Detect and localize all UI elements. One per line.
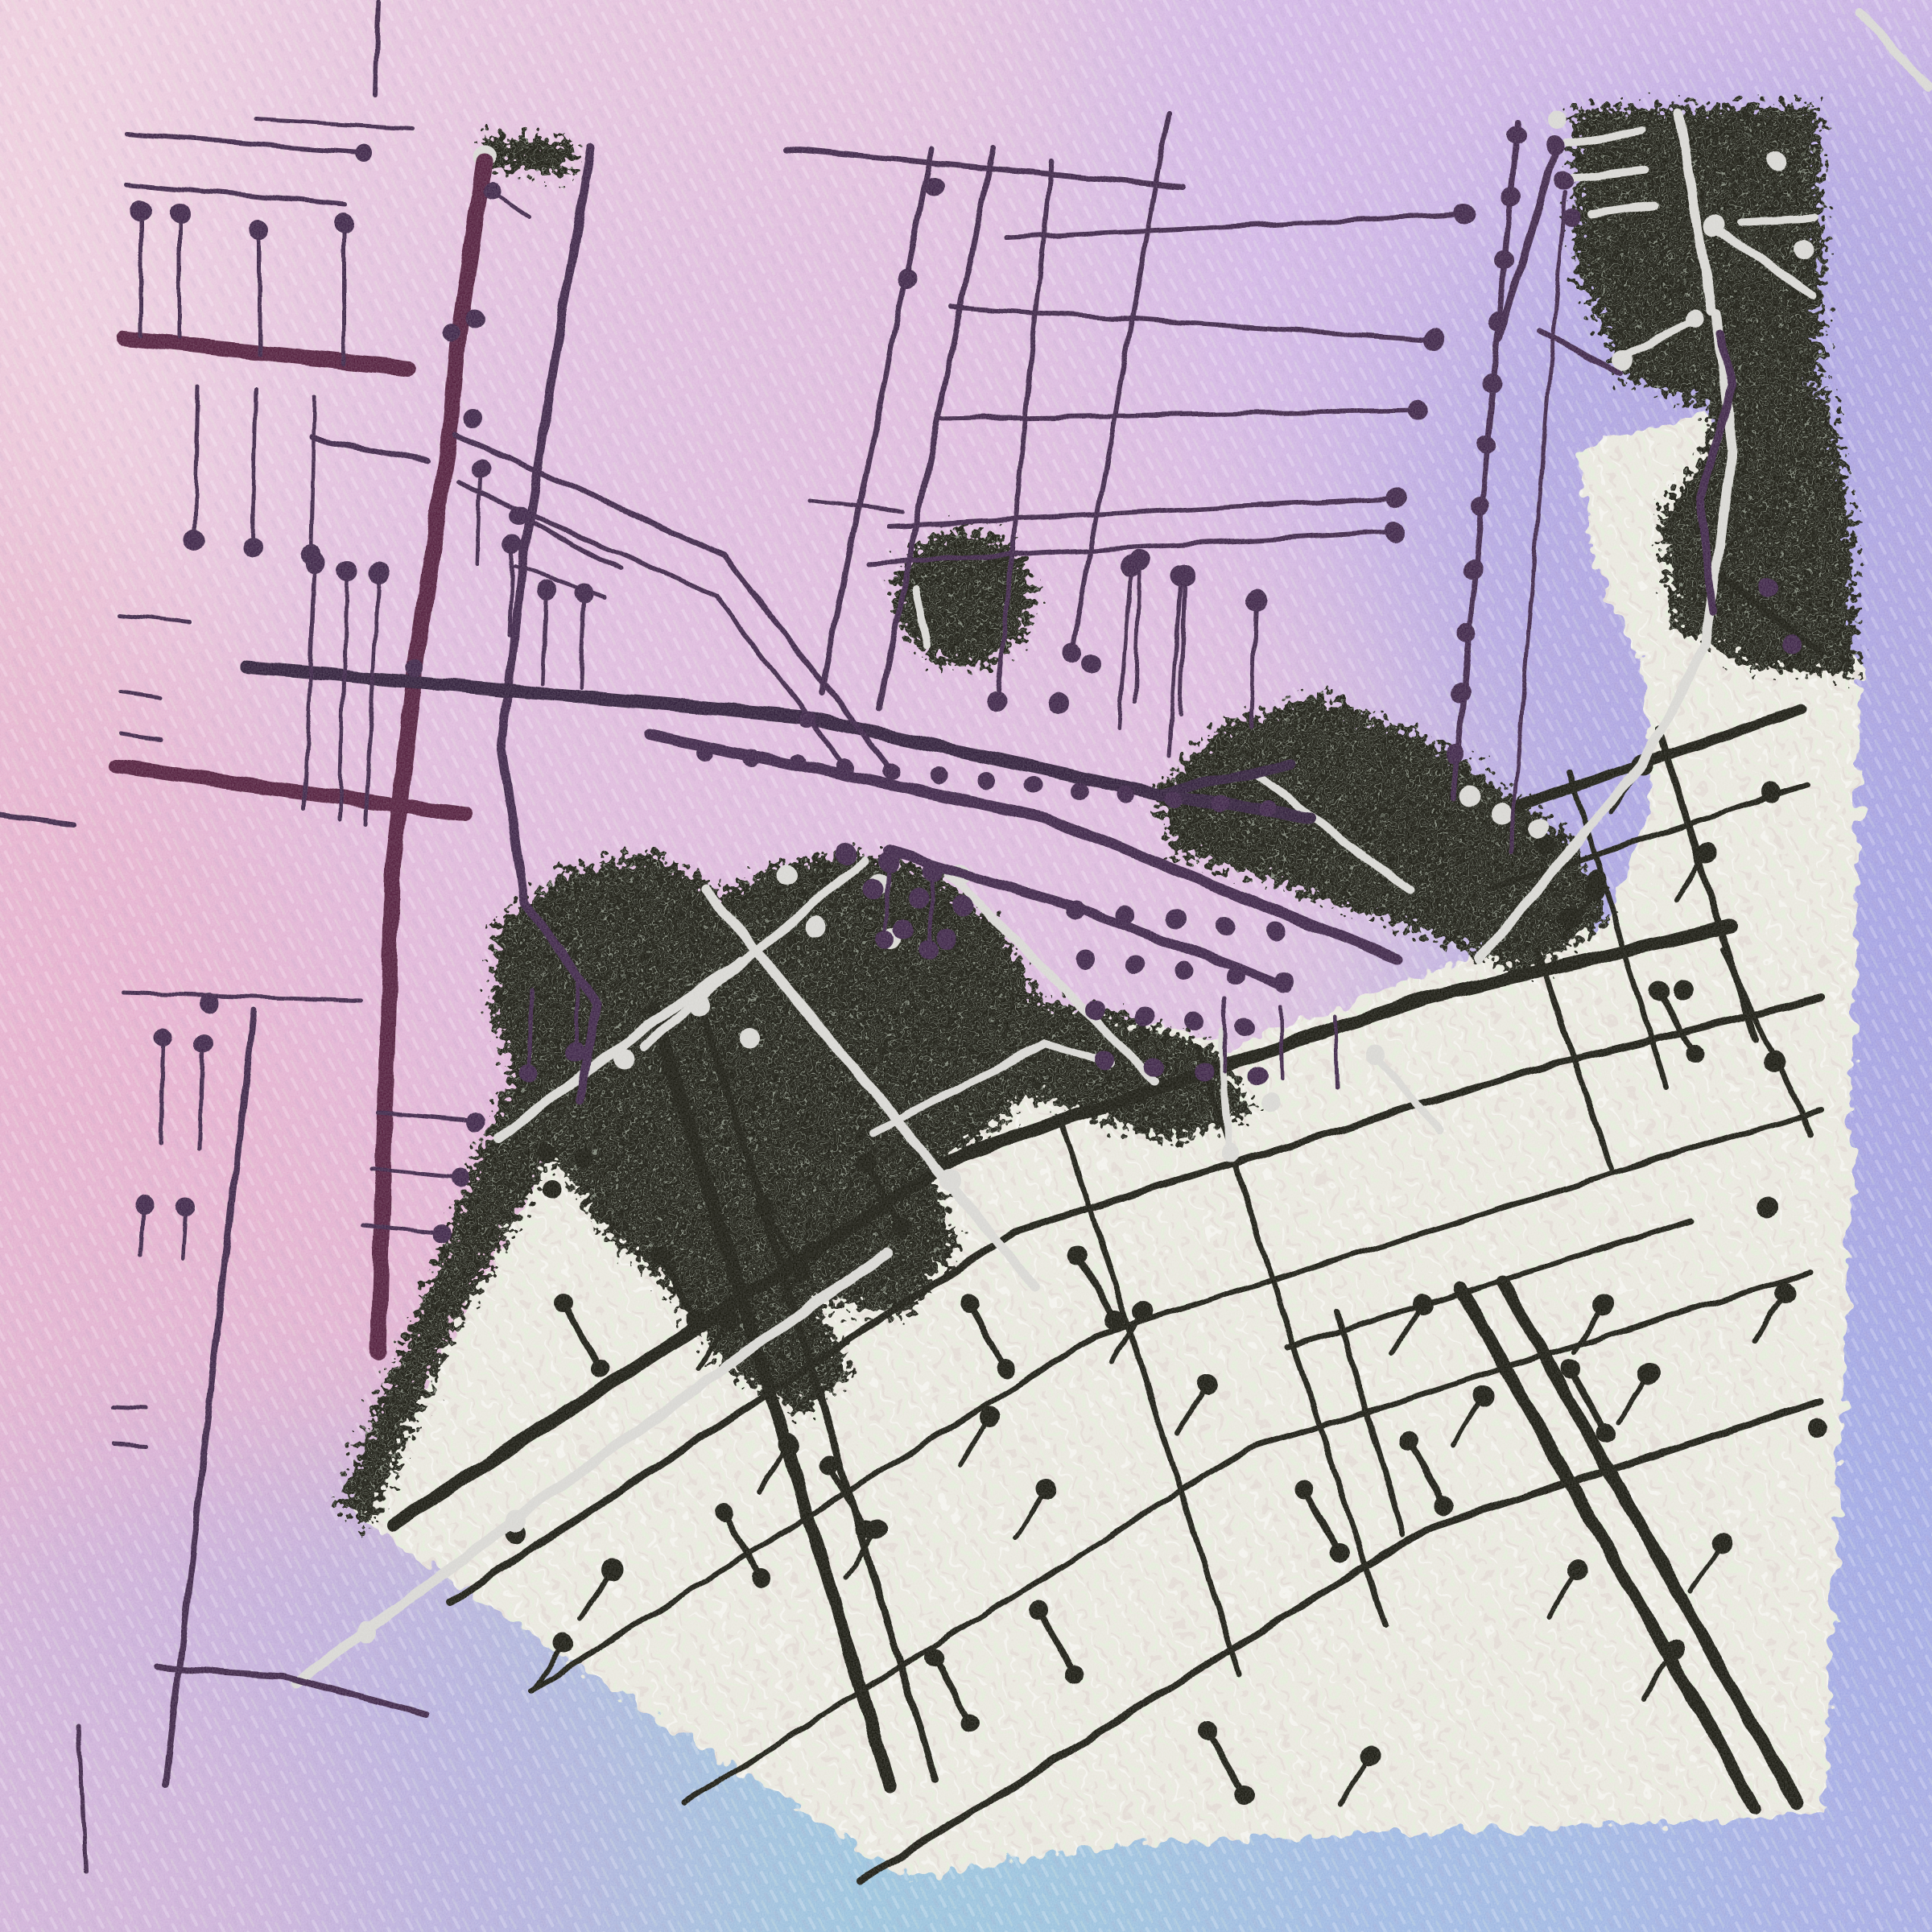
- artwork-stage: [0, 0, 1932, 1932]
- paper-grain-overlay: [0, 0, 1932, 1932]
- artwork-canvas: [0, 0, 1932, 1932]
